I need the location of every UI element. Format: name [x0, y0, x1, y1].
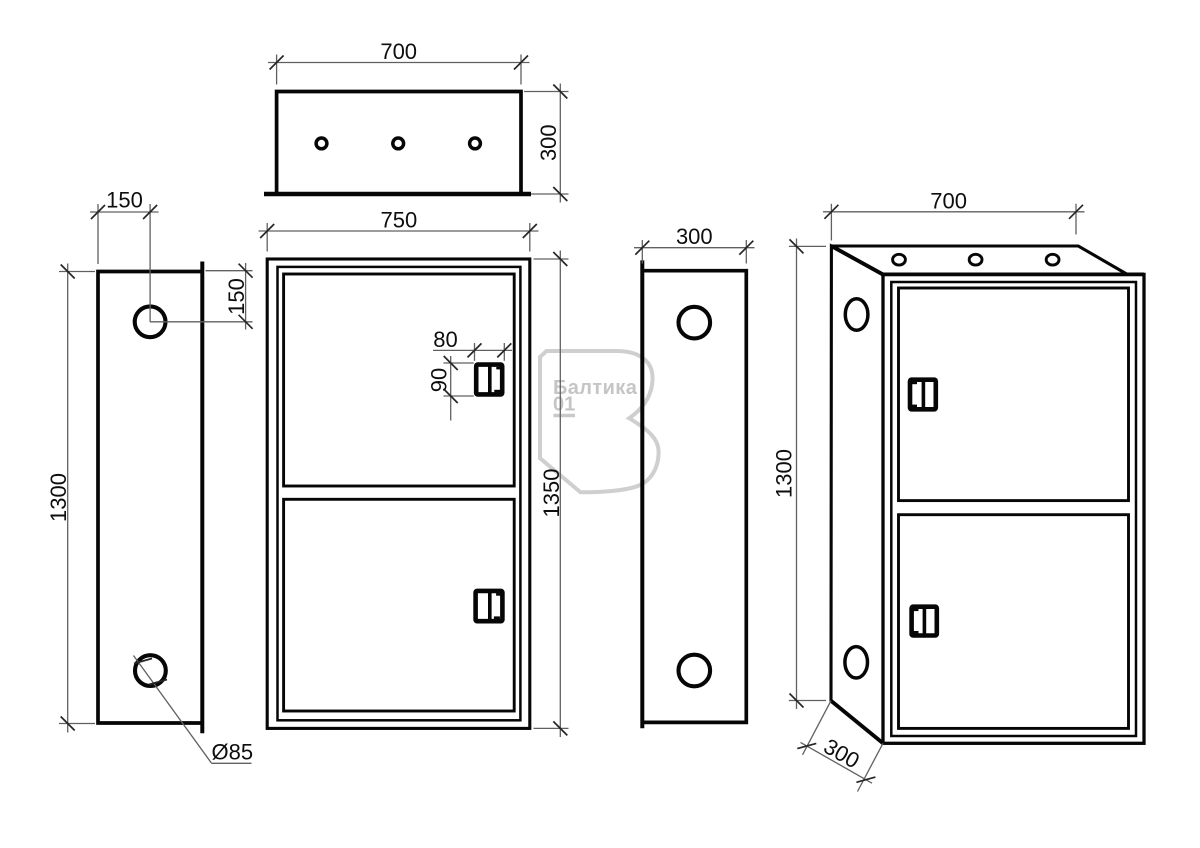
svg-text:1350: 1350 — [539, 469, 564, 518]
svg-text:300: 300 — [676, 224, 713, 249]
svg-text:150: 150 — [224, 278, 249, 315]
svg-text:1300: 1300 — [772, 449, 797, 498]
svg-text:80: 80 — [433, 327, 457, 352]
svg-text:01: 01 — [553, 394, 575, 416]
svg-text:300: 300 — [536, 124, 561, 161]
svg-text:90: 90 — [427, 368, 452, 392]
svg-text:150: 150 — [106, 188, 143, 213]
svg-text:750: 750 — [381, 208, 418, 233]
svg-text:700: 700 — [930, 188, 967, 213]
svg-text:700: 700 — [380, 39, 417, 64]
svg-text:Ø85: Ø85 — [212, 740, 254, 765]
svg-text:1300: 1300 — [46, 473, 71, 522]
